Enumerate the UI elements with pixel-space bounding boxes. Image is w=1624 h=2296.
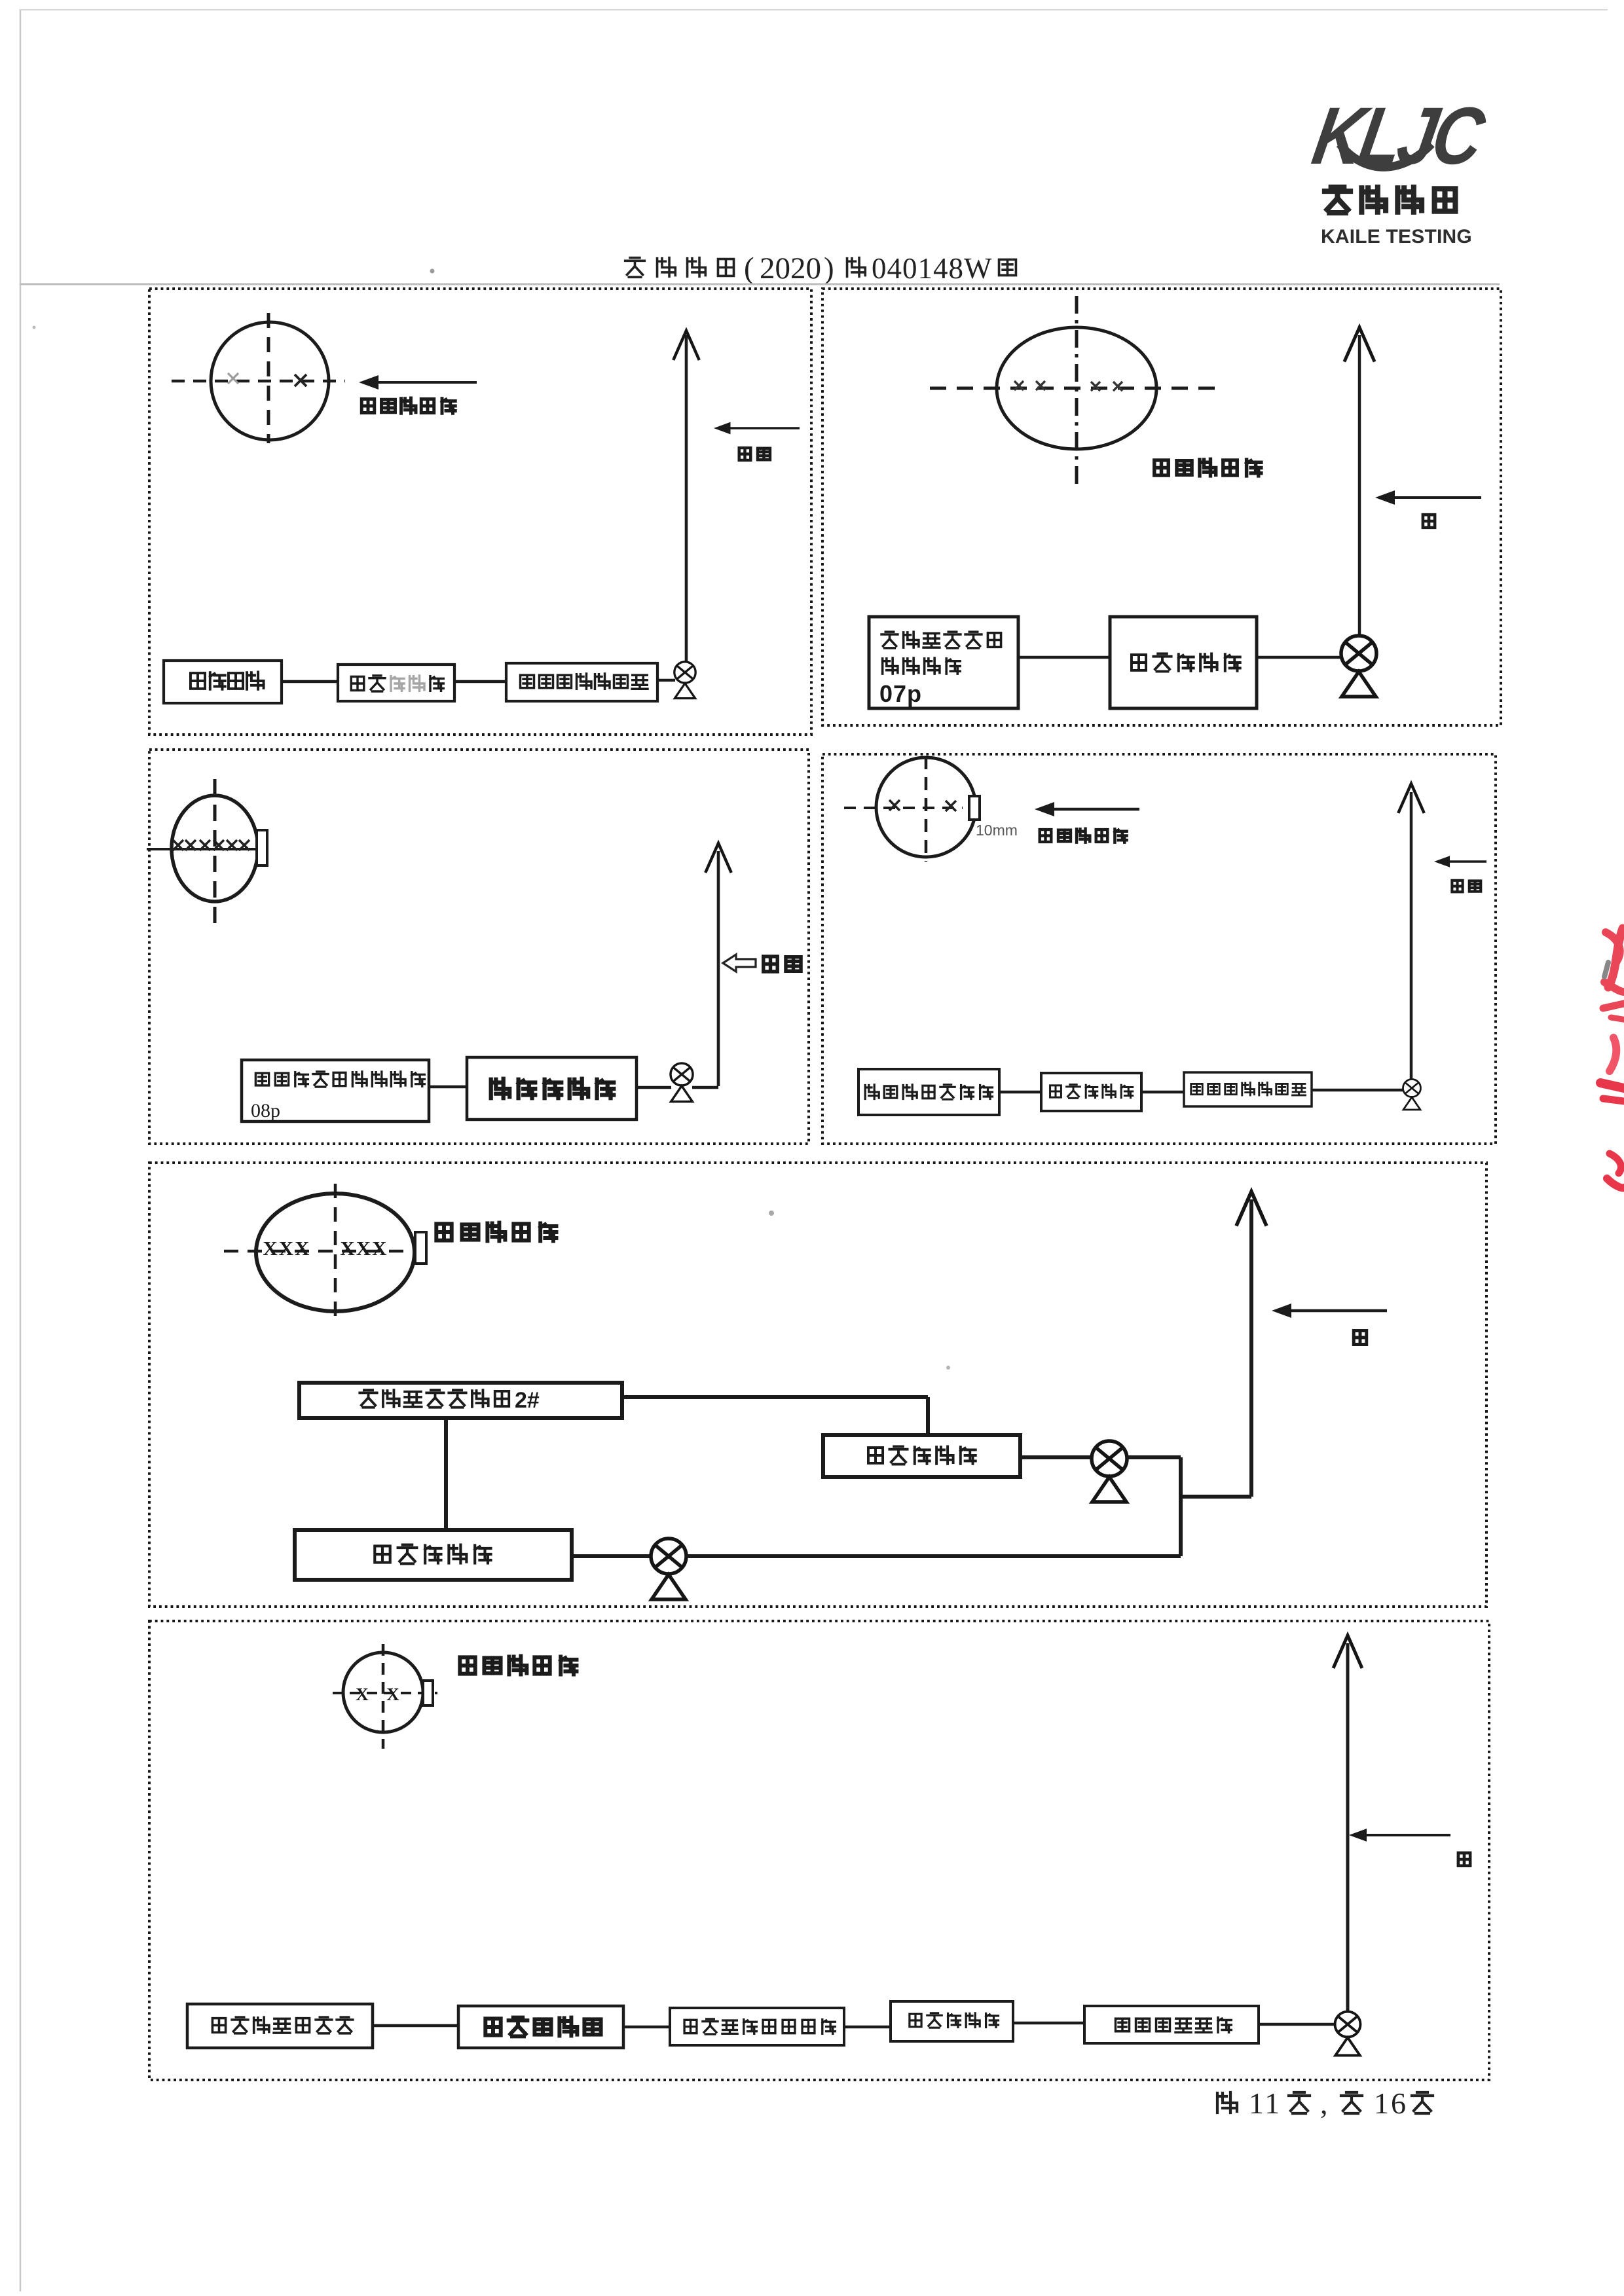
svg-text:KAILE TESTING: KAILE TESTING [1321, 226, 1472, 247]
svg-text:040148W: 040148W [872, 252, 992, 285]
svg-text:07p: 07p [879, 680, 922, 707]
svg-text:(: ( [744, 251, 754, 285]
svg-text:11: 11 [1249, 2086, 1282, 2120]
svg-text:10mm: 10mm [976, 822, 1018, 839]
svg-text:): ) [824, 251, 834, 285]
svg-text:08p: 08p [251, 1100, 280, 1121]
svg-text:2#: 2# [515, 1388, 540, 1413]
svg-text:2020: 2020 [760, 251, 821, 285]
svg-text:XXX: XXX [340, 1237, 388, 1260]
svg-text:16: 16 [1374, 2086, 1408, 2120]
svg-text:X: X [356, 1685, 369, 1704]
svg-text:,: , [1320, 2086, 1328, 2120]
svg-text:XXX: XXX [263, 1237, 310, 1260]
svg-text:X: X [386, 1685, 399, 1704]
